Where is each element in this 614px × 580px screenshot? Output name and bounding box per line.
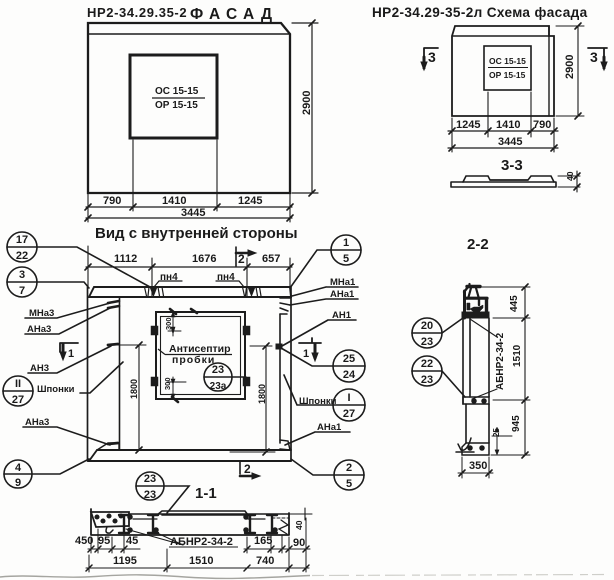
svg-text:1245: 1245 (238, 195, 262, 207)
svg-text:1112: 1112 (114, 253, 137, 265)
svg-text:22: 22 (16, 250, 28, 262)
svg-text:740: 740 (256, 555, 274, 567)
svg-text:ОР 15-15: ОР 15-15 (489, 70, 526, 80)
svg-text:2: 2 (244, 462, 251, 476)
svg-text:2: 2 (238, 252, 245, 266)
svg-text:1510: 1510 (512, 344, 523, 367)
svg-text:657: 657 (262, 253, 280, 265)
svg-text:300: 300 (164, 317, 173, 330)
svg-text:3: 3 (428, 49, 436, 65)
svg-text:3445: 3445 (181, 207, 205, 219)
svg-text:23: 23 (212, 364, 224, 376)
svg-text:АН3: АН3 (30, 363, 49, 374)
svg-text:1: 1 (343, 237, 349, 249)
svg-text:9: 9 (15, 477, 21, 489)
svg-text:450: 450 (75, 535, 93, 547)
svg-text:3: 3 (590, 49, 598, 65)
svg-text:25: 25 (492, 428, 501, 437)
svg-text:АН1: АН1 (332, 310, 352, 321)
svg-text:790: 790 (533, 119, 551, 131)
svg-text:ОС 15-15: ОС 15-15 (155, 86, 199, 97)
svg-text:23а: 23а (210, 381, 227, 392)
svg-text:2900: 2900 (564, 55, 576, 79)
svg-text:1410: 1410 (162, 195, 186, 207)
svg-text:1: 1 (303, 348, 309, 360)
svg-text:ОС 15-15: ОС 15-15 (489, 56, 526, 66)
svg-text:45: 45 (126, 535, 138, 547)
svg-text:165: 165 (254, 535, 272, 547)
svg-text:1676: 1676 (192, 253, 216, 265)
svg-text:7: 7 (19, 285, 25, 297)
svg-text:24: 24 (343, 369, 356, 381)
svg-text:1-1: 1-1 (195, 485, 217, 502)
svg-text:НР2-34.29.35-2: НР2-34.29.35-2 (87, 5, 187, 20)
svg-text:2: 2 (346, 462, 352, 474)
svg-text:1410: 1410 (496, 119, 520, 131)
svg-text:Вид с внутренней стороны: Вид с внутренней стороны (95, 225, 298, 242)
svg-text:2900: 2900 (301, 91, 313, 115)
svg-text:95: 95 (98, 535, 110, 547)
svg-text:II: II (15, 378, 21, 390)
svg-text:5: 5 (343, 253, 349, 265)
svg-text:АБНР2-34-2: АБНР2-34-2 (495, 332, 506, 390)
svg-text:Шпонки: Шпонки (299, 396, 337, 407)
svg-text:17: 17 (16, 234, 28, 246)
svg-text:25: 25 (343, 353, 355, 365)
svg-text:22: 22 (421, 358, 433, 370)
svg-text:АНа3: АНа3 (27, 324, 51, 335)
svg-text:23: 23 (144, 473, 156, 485)
svg-text:23: 23 (421, 374, 433, 386)
svg-text:2-2: 2-2 (467, 236, 489, 253)
svg-text:пн4: пн4 (160, 272, 178, 283)
svg-text:1800: 1800 (129, 379, 139, 399)
svg-text:350: 350 (469, 460, 487, 472)
svg-text:I: I (347, 392, 350, 404)
svg-text:5: 5 (346, 478, 352, 490)
svg-text:ФАСАД: ФАСАД (190, 6, 278, 23)
svg-text:пробки: пробки (172, 354, 215, 366)
svg-text:40: 40 (565, 171, 575, 181)
svg-text:1195: 1195 (113, 555, 137, 567)
svg-text:АНа1: АНа1 (317, 422, 342, 433)
svg-text:90: 90 (293, 537, 305, 549)
svg-text:1510: 1510 (189, 555, 213, 567)
svg-text:1800: 1800 (257, 384, 267, 404)
svg-text:300: 300 (163, 377, 172, 390)
svg-text:1245: 1245 (456, 119, 480, 131)
svg-text:АНа1: АНа1 (330, 289, 355, 300)
svg-text:27: 27 (12, 394, 24, 406)
svg-text:20: 20 (421, 320, 433, 332)
svg-text:МНа1: МНа1 (330, 277, 356, 288)
svg-text:445: 445 (509, 295, 520, 312)
svg-text:23: 23 (421, 336, 433, 348)
svg-text:МНа3: МНа3 (29, 308, 54, 319)
svg-text:АНа3: АНа3 (25, 417, 49, 428)
svg-text:4: 4 (15, 462, 22, 474)
svg-text:3-3: 3-3 (501, 157, 523, 174)
svg-text:40: 40 (294, 520, 304, 530)
svg-text:23: 23 (144, 489, 156, 501)
svg-text:пн4: пн4 (217, 272, 235, 283)
svg-text:790: 790 (103, 195, 121, 207)
svg-text:НР2-34.29-35-2л Схема фасада: НР2-34.29-35-2л Схема фасада (372, 5, 588, 20)
svg-text:3445: 3445 (498, 136, 522, 148)
svg-text:945: 945 (511, 415, 522, 432)
svg-text:1: 1 (68, 348, 74, 360)
svg-text:3: 3 (19, 269, 25, 281)
svg-text:ОР 15-15: ОР 15-15 (155, 100, 198, 111)
svg-text:АБНР2-34-2: АБНР2-34-2 (170, 536, 233, 548)
svg-text:27: 27 (343, 408, 355, 420)
svg-text:Шпонки: Шпонки (37, 384, 75, 395)
